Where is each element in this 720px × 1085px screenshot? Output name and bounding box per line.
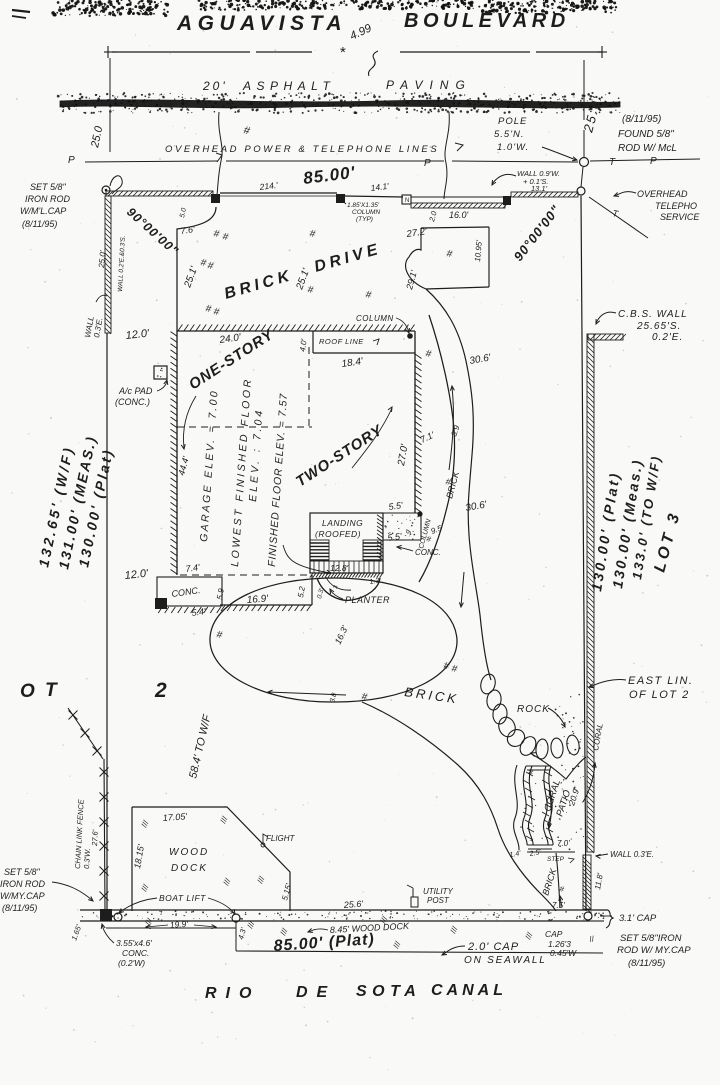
svg-text:BOULEVARD: BOULEVARD — [404, 10, 570, 32]
svg-text:16.0': 16.0' — [449, 210, 469, 220]
svg-text:ROCK: ROCK — [517, 704, 550, 715]
svg-text:25.6': 25.6' — [342, 899, 363, 910]
svg-text:19.9': 19.9' — [169, 919, 188, 930]
svg-text:COLUMN: COLUMN — [356, 314, 394, 323]
svg-text:(TYP): (TYP) — [356, 216, 373, 223]
svg-text:(8/11/95): (8/11/95) — [622, 114, 661, 125]
svg-text:PAVING: PAVING — [386, 78, 472, 92]
svg-text:SOTA: SOTA — [356, 983, 421, 1000]
svg-text:FOUND 5/8": FOUND 5/8" — [618, 129, 674, 140]
svg-text:LANDING: LANDING — [322, 518, 363, 528]
svg-text:0.2'E.: 0.2'E. — [652, 332, 683, 343]
svg-text:12.0': 12.0' — [124, 567, 150, 581]
svg-text:W/M'L.CAP: W/M'L.CAP — [20, 206, 66, 216]
svg-text:1.85'X1.35': 1.85'X1.35' — [347, 202, 380, 209]
svg-text:TELEPHO: TELEPHO — [655, 201, 697, 211]
svg-text:7.6': 7.6' — [180, 224, 196, 236]
svg-text:25.65'S.: 25.65'S. — [636, 321, 681, 332]
svg-text:P: P — [68, 155, 75, 166]
svg-text:SET 5/8": SET 5/8" — [30, 182, 67, 192]
svg-text:12.8': 12.8' — [330, 563, 349, 573]
svg-text:16.9': 16.9' — [246, 593, 269, 606]
svg-text:ROOF LINE: ROOF LINE — [319, 337, 364, 346]
svg-text:ON SEAWALL: ON SEAWALL — [464, 955, 547, 966]
svg-text:(8/11/95): (8/11/95) — [628, 958, 665, 969]
svg-text:COLUMN: COLUMN — [352, 209, 380, 216]
svg-text:(CONC.): (CONC.) — [115, 397, 150, 407]
svg-text:DE: DE — [296, 984, 336, 1001]
svg-text:7.0': 7.0' — [557, 839, 570, 848]
svg-text:O: O — [20, 681, 35, 702]
svg-text:WOOD: WOOD — [169, 847, 209, 858]
svg-text:3.55'x4.6': 3.55'x4.6' — [116, 938, 152, 948]
svg-text:CONC.: CONC. — [122, 948, 149, 958]
svg-text:SET 5/8": SET 5/8" — [4, 867, 41, 877]
svg-text:27.6': 27.6' — [90, 829, 100, 847]
svg-text:EAST LIN.: EAST LIN. — [628, 675, 693, 687]
svg-text:POLE: POLE — [498, 116, 527, 127]
svg-text:CANAL: CANAL — [431, 982, 507, 999]
svg-text:5.5': 5.5' — [388, 500, 404, 512]
svg-text:17.05': 17.05' — [162, 811, 187, 823]
svg-text:SET 5/8"IRON: SET 5/8"IRON — [620, 933, 682, 944]
svg-text:ROD W/ MY.CAP: ROD W/ MY.CAP — [617, 945, 691, 956]
svg-text:T: T — [609, 157, 616, 168]
svg-text:P: P — [424, 158, 431, 169]
svg-text:WALL 0.3'E.: WALL 0.3'E. — [610, 850, 654, 859]
svg-text:FLIGHT: FLIGHT — [266, 834, 296, 843]
svg-text:T: T — [45, 680, 58, 701]
svg-text:POST: POST — [427, 896, 450, 905]
svg-text:OVERHEAD: OVERHEAD — [637, 189, 688, 199]
svg-text:DOCK: DOCK — [171, 863, 208, 874]
svg-text:BOAT LIFT: BOAT LIFT — [159, 893, 206, 903]
svg-text:PLANTER: PLANTER — [345, 595, 390, 605]
svg-text:SERVICE: SERVICE — [660, 212, 700, 222]
svg-text:STEP: STEP — [547, 856, 565, 863]
svg-text:7.4': 7.4' — [185, 562, 201, 574]
svg-text:P: P — [650, 156, 657, 167]
svg-text:5.4': 5.4' — [191, 606, 207, 618]
svg-text:2: 2 — [154, 679, 167, 702]
svg-text:(0.2'W): (0.2'W) — [118, 958, 145, 968]
svg-text:0.45'W: 0.45'W — [550, 948, 577, 958]
svg-text:C.B.S. WALL: C.B.S. WALL — [618, 309, 688, 320]
svg-text:*: * — [340, 44, 346, 61]
svg-text:7.5': 7.5' — [552, 901, 565, 910]
svg-text:12.0': 12.0' — [125, 327, 151, 341]
svg-text:20': 20' — [202, 79, 228, 93]
svg-text:ASPHALT: ASPHALT — [242, 79, 335, 93]
svg-text:10.95': 10.95' — [473, 239, 484, 262]
svg-text:(8/11/95): (8/11/95) — [22, 219, 57, 229]
svg-text:N: N — [405, 198, 409, 204]
svg-text:UTILITY: UTILITY — [423, 887, 453, 896]
svg-text:25.0': 25.0' — [97, 250, 108, 269]
svg-text:0.3'W.: 0.3'W. — [82, 848, 92, 869]
svg-text:(ROOFED): (ROOFED) — [315, 529, 361, 539]
svg-text:2.0' CAP: 2.0' CAP — [467, 941, 519, 953]
svg-text:W/MY.CAP: W/MY.CAP — [0, 891, 45, 901]
svg-text:CONC.: CONC. — [415, 548, 441, 557]
svg-text:AGUAVISTA: AGUAVISTA — [176, 12, 347, 35]
svg-text:RIO: RIO — [205, 985, 260, 1002]
svg-text:A/c PAD: A/c PAD — [118, 386, 153, 396]
svg-text:ROD W/ McL: ROD W/ McL — [618, 143, 677, 154]
svg-text:4.0': 4.0' — [298, 338, 309, 352]
svg-text:OVERHEAD POWER & TELEPHONE: OVERHEAD POWER & TELEPHONE LINES — [165, 144, 439, 155]
svg-text:5.5'N.: 5.5'N. — [494, 129, 525, 140]
svg-text:IRON ROD: IRON ROD — [0, 879, 46, 889]
svg-text:(8/11/95): (8/11/95) — [2, 903, 37, 913]
svg-text:IRON ROD: IRON ROD — [25, 194, 71, 204]
svg-text:CAP: CAP — [545, 929, 563, 939]
svg-text:OF LOT 2: OF LOT 2 — [629, 689, 690, 701]
svg-text:1.0'W.: 1.0'W. — [497, 142, 529, 153]
svg-text:5.5': 5.5' — [387, 531, 403, 543]
svg-text:3.1' CAP: 3.1' CAP — [619, 913, 657, 924]
